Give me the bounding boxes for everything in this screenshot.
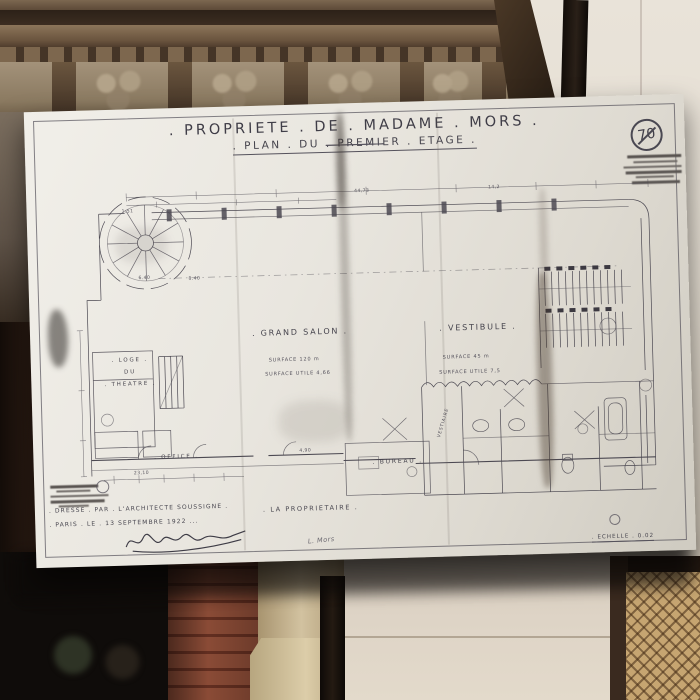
- mantel-shelf-shadow: [0, 10, 520, 25]
- andiron: [40, 620, 150, 690]
- photo-of-floor-plan-on-easel: . PROPRIETE . DE . MADAME . MORS . . PLA…: [0, 0, 700, 700]
- top-wall-piers: [167, 198, 557, 221]
- architect-signature: [120, 520, 251, 556]
- mantel-shelf: [0, 0, 520, 10]
- main-staircase: [538, 264, 633, 368]
- dimension-label: 14,2: [488, 185, 500, 190]
- easel-pole-top: [561, 0, 589, 110]
- bathroom-fixtures: [472, 397, 635, 478]
- stain-blob: [278, 399, 351, 443]
- floor-plan-board: . PROPRIETE . DE . MADAME . MORS . . PLA…: [24, 94, 696, 568]
- carved-garland: [84, 68, 158, 112]
- dimension-label: 44,73: [354, 189, 369, 194]
- mantel-dentils: [0, 47, 520, 62]
- small-staircase: [159, 356, 184, 409]
- stain-blob: [115, 226, 168, 263]
- mantel-cornice: [0, 25, 520, 47]
- dimension-label: 8.40: [188, 276, 200, 281]
- mantel-corbel: [52, 62, 76, 118]
- panel-moulding: [344, 636, 629, 638]
- dimension-label: 1.51: [122, 209, 134, 214]
- wicker-lattice: [626, 572, 700, 700]
- dimension-label: 23,10: [134, 471, 149, 476]
- dimension-label: 6.40: [138, 276, 150, 281]
- scale-label: . ECHELLE . 0.02: [592, 533, 654, 543]
- dimension-label: 4,90: [299, 448, 311, 453]
